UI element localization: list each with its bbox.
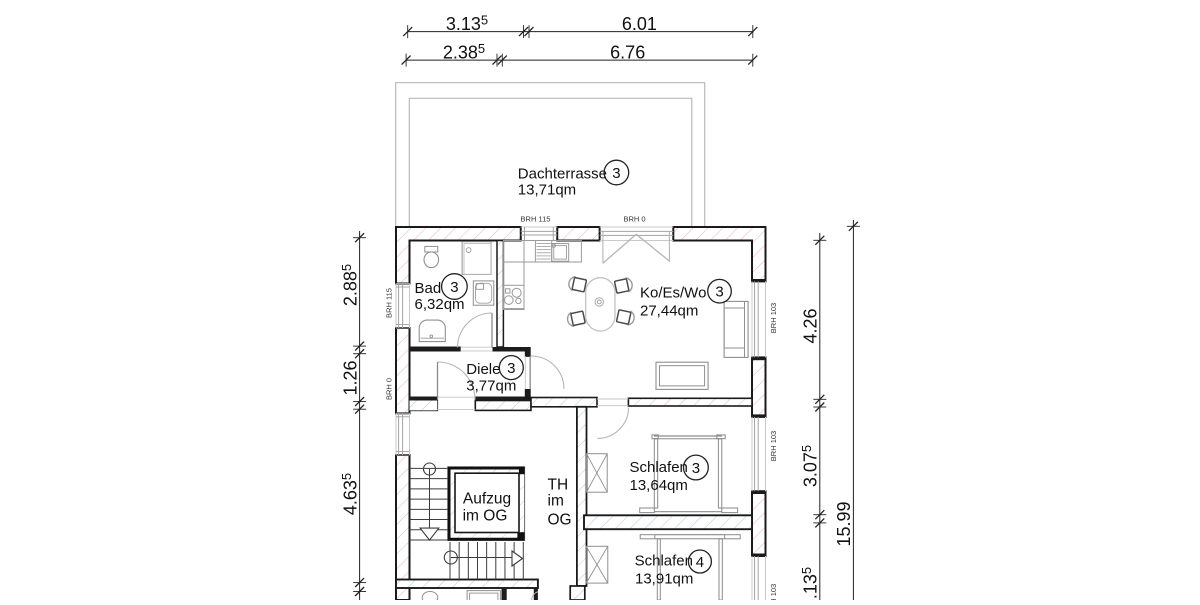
svg-text:BRH 0: BRH 0 <box>385 378 394 400</box>
svg-text:BRH 115: BRH 115 <box>521 215 551 224</box>
svg-text:15.99: 15.99 <box>834 501 854 546</box>
svg-text:Schlafen: Schlafen <box>630 459 688 476</box>
svg-text:Bad: Bad <box>415 280 442 297</box>
svg-text:4: 4 <box>696 554 704 571</box>
svg-text:BRH 103: BRH 103 <box>769 584 778 600</box>
svg-text:BRH 103: BRH 103 <box>769 303 778 333</box>
svg-text:6,32qm: 6,32qm <box>415 296 465 313</box>
svg-text:3: 3 <box>612 165 620 182</box>
svg-text:Aufzug: Aufzug <box>463 491 511 508</box>
svg-text:BRH 103: BRH 103 <box>769 431 778 461</box>
svg-text:im: im <box>548 492 564 509</box>
svg-text:OG: OG <box>548 512 572 529</box>
svg-text:6.76: 6.76 <box>610 42 645 62</box>
svg-text:Schlafen: Schlafen <box>635 553 693 570</box>
svg-text:1.26: 1.26 <box>341 360 361 395</box>
svg-text:3: 3 <box>450 279 458 296</box>
svg-text:3: 3 <box>507 360 515 377</box>
svg-text:4.26: 4.26 <box>801 308 821 343</box>
svg-text:13,71qm: 13,71qm <box>518 182 576 199</box>
svg-text:BRH 115: BRH 115 <box>385 288 394 318</box>
svg-text:Ko/Es/Wo: Ko/Es/Wo <box>640 284 706 301</box>
svg-text:6.01: 6.01 <box>622 14 657 34</box>
svg-text:3,77qm: 3,77qm <box>466 378 516 395</box>
svg-text:Diele: Diele <box>466 361 500 378</box>
svg-text:13,64qm: 13,64qm <box>630 477 688 494</box>
svg-text:3: 3 <box>692 460 700 477</box>
svg-text:im OG: im OG <box>463 507 508 524</box>
svg-text:27,44qm: 27,44qm <box>640 302 698 319</box>
svg-text:13,91qm: 13,91qm <box>635 571 693 588</box>
svg-text:3: 3 <box>715 284 723 301</box>
svg-text:TH: TH <box>548 477 569 494</box>
svg-text:BRH 0: BRH 0 <box>623 215 645 224</box>
svg-text:Dachterrasse: Dachterrasse <box>518 165 607 182</box>
